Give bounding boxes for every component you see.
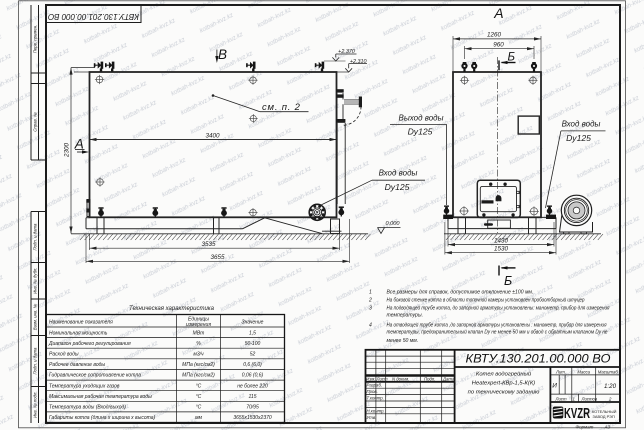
svg-text:Дата: Дата bbox=[442, 376, 455, 381]
svg-text:Лит.: Лит. bbox=[555, 369, 566, 374]
svg-text:3400: 3400 bbox=[205, 132, 220, 139]
svg-text:Диапазон рабочего регулировани: Диапазон рабочего регулирования bbox=[48, 341, 131, 347]
svg-text:1260: 1260 bbox=[487, 32, 502, 39]
svg-text:Взам. инв. №: Взам. инв. № bbox=[32, 303, 37, 330]
svg-text:Перв. примен.: Перв. примен. bbox=[32, 25, 37, 54]
svg-text:°С: °С bbox=[196, 405, 202, 411]
svg-text:°С: °С bbox=[196, 383, 202, 389]
svg-text:Dy125: Dy125 bbox=[566, 133, 591, 143]
svg-text:Наименование показателя: Наименование показателя bbox=[49, 320, 113, 326]
svg-text:Габариты котла (длина х ширина: Габариты котла (длина х ширина х высота) bbox=[49, 415, 156, 421]
svg-text:Все размеры для справок, допус: Все размеры для справок, допустимое откл… bbox=[387, 289, 534, 295]
svg-text:Лист: Лист bbox=[555, 397, 567, 402]
svg-text:°С: °С bbox=[196, 394, 202, 400]
svg-text:Подп. и дата: Подп. и дата bbox=[32, 347, 37, 375]
svg-text:измерения: измерения bbox=[186, 322, 211, 328]
svg-text:не более 220: не более 220 bbox=[237, 383, 268, 389]
svg-text:На подводящей трубе котла, д: На подводящей трубе котла, до запорной а… bbox=[387, 304, 610, 311]
svg-text:МПа (кгс/см2): МПа (кгс/см2) bbox=[182, 362, 215, 368]
svg-text:0.000: 0.000 bbox=[386, 221, 401, 227]
svg-text:3655х1530х2370: 3655х1530х2370 bbox=[233, 415, 272, 421]
svg-text:Температура уходящих газов: Температура уходящих газов bbox=[49, 383, 120, 389]
svg-text:3535: 3535 bbox=[201, 241, 216, 248]
svg-text:0,6 (6,0): 0,6 (6,0) bbox=[243, 362, 262, 368]
svg-text:А: А bbox=[493, 5, 503, 21]
svg-text:Номинальная мощность: Номинальная мощность bbox=[49, 330, 108, 336]
svg-text:Подп.: Подп. bbox=[424, 376, 435, 381]
svg-text:КВТУ.130.201.00.000 ВО: КВТУ.130.201.00.000 ВО bbox=[48, 12, 139, 21]
svg-text:температуры.: температуры. bbox=[387, 313, 424, 319]
svg-text:МВт: МВт bbox=[193, 330, 205, 336]
svg-text:Изм.: Изм. bbox=[366, 376, 375, 381]
svg-text:Вход воды: Вход воды bbox=[379, 169, 418, 178]
svg-text:Лист: Лист bbox=[376, 376, 388, 381]
svg-text:температуры, предохранительный: температуры, предохранительный клапан Dy… bbox=[387, 329, 608, 336]
svg-text:52: 52 bbox=[250, 352, 256, 358]
svg-text:960: 960 bbox=[493, 42, 504, 49]
svg-text:+2.370: +2.370 bbox=[338, 49, 355, 55]
svg-text:Котел водогрейный: Котел водогрейный bbox=[476, 371, 532, 378]
svg-text:Подп. и дата: Подп. и дата bbox=[32, 223, 37, 251]
svg-text:Инв. № дубл.: Инв. № дубл. bbox=[32, 267, 37, 293]
svg-text:Dy125: Dy125 bbox=[408, 127, 433, 137]
svg-text:Листов: Листов bbox=[581, 397, 598, 402]
svg-text:Рабочее давление воды: Рабочее давление воды bbox=[49, 362, 105, 368]
svg-text:В: В bbox=[218, 47, 227, 62]
svg-text:Справ. №: Справ. № bbox=[32, 112, 37, 132]
svg-text:KVZR: KVZR bbox=[564, 406, 590, 422]
svg-text:Расход воды: Расход воды bbox=[49, 352, 79, 358]
svg-text:%: % bbox=[196, 341, 201, 347]
svg-text:+2.310: +2.310 bbox=[350, 59, 367, 65]
svg-text:м3/ч: м3/ч bbox=[193, 352, 204, 358]
svg-text:Техническая характеристика: Техническая характеристика bbox=[129, 306, 215, 312]
svg-text:Формат: Формат bbox=[576, 424, 594, 429]
svg-text:На боковой стенке котла в обла: На боковой стенке котла в области топочн… bbox=[387, 296, 585, 303]
svg-text:И: И bbox=[552, 383, 557, 390]
svg-text:На отводящей трубе котла ,до з: На отводящей трубе котла ,до запорной ар… bbox=[387, 322, 607, 329]
svg-text:Пров.: Пров. bbox=[367, 389, 378, 394]
svg-text:0,06 (0,6): 0,06 (0,6) bbox=[242, 373, 264, 379]
svg-text:Dy125: Dy125 bbox=[385, 182, 410, 192]
svg-text:А3: А3 bbox=[604, 424, 611, 429]
svg-text:менее 50 мм.: менее 50 мм. bbox=[387, 338, 419, 344]
svg-text:N докум.: N докум. bbox=[392, 376, 409, 381]
svg-text:см. п. 2: см. п. 2 bbox=[262, 102, 301, 113]
svg-text:3655: 3655 bbox=[210, 254, 225, 261]
svg-text:мм: мм bbox=[195, 415, 202, 421]
svg-text:Инв. № подл.: Инв. № подл. bbox=[32, 391, 37, 418]
svg-text:Выход воды: Выход воды bbox=[399, 114, 444, 123]
svg-text:Масштаб: Масштаб bbox=[598, 369, 619, 374]
svg-text:Температура воды (Вход/выход): Температура воды (Вход/выход) bbox=[49, 405, 126, 411]
svg-text:115: 115 bbox=[249, 394, 257, 400]
svg-text:Вход воды: Вход воды bbox=[562, 120, 601, 129]
svg-text:Б: Б bbox=[504, 274, 512, 288]
svg-text:Масса: Масса bbox=[577, 369, 590, 374]
svg-text:Значение: Значение bbox=[242, 320, 264, 326]
svg-text:ЗАВОД РЭП: ЗАВОД РЭП bbox=[593, 414, 615, 419]
svg-text:1530: 1530 bbox=[494, 246, 509, 253]
svg-text:3: 3 bbox=[369, 305, 372, 311]
svg-text:Heatexpert-КВр-1,5-К(К): Heatexpert-КВр-1,5-К(К) bbox=[472, 381, 535, 387]
svg-text:КВТУ.130.201.00.000 ВО: КВТУ.130.201.00.000 ВО bbox=[466, 353, 611, 365]
svg-text:Утв.: Утв. bbox=[367, 415, 377, 420]
svg-text:70/95: 70/95 bbox=[246, 405, 259, 411]
svg-text:Разраб.: Разраб. bbox=[367, 383, 383, 388]
svg-text:2300: 2300 bbox=[63, 143, 70, 159]
svg-text:по техническому заданию: по техническому заданию bbox=[468, 390, 540, 396]
svg-text:Н.контр.: Н.контр. bbox=[367, 408, 385, 413]
svg-text:МПа (кгс/см2): МПа (кгс/см2) bbox=[182, 373, 215, 379]
svg-text:Б: Б bbox=[508, 52, 516, 64]
svg-text:1430: 1430 bbox=[494, 237, 509, 244]
svg-text:Гидравлическое сопротивление к: Гидравлическое сопротивление котла bbox=[49, 373, 141, 379]
svg-text:Т.контр.: Т.контр. bbox=[367, 396, 384, 401]
svg-text:1: 1 bbox=[369, 289, 372, 295]
svg-text:1:20: 1:20 bbox=[604, 383, 617, 390]
svg-text:4: 4 bbox=[369, 323, 372, 329]
svg-text:Максимальная рабочая температу: Максимальная рабочая температура воды bbox=[49, 394, 152, 400]
svg-text:1,5: 1,5 bbox=[249, 330, 256, 336]
svg-text:2: 2 bbox=[368, 297, 372, 303]
svg-text:50-100: 50-100 bbox=[245, 341, 261, 347]
